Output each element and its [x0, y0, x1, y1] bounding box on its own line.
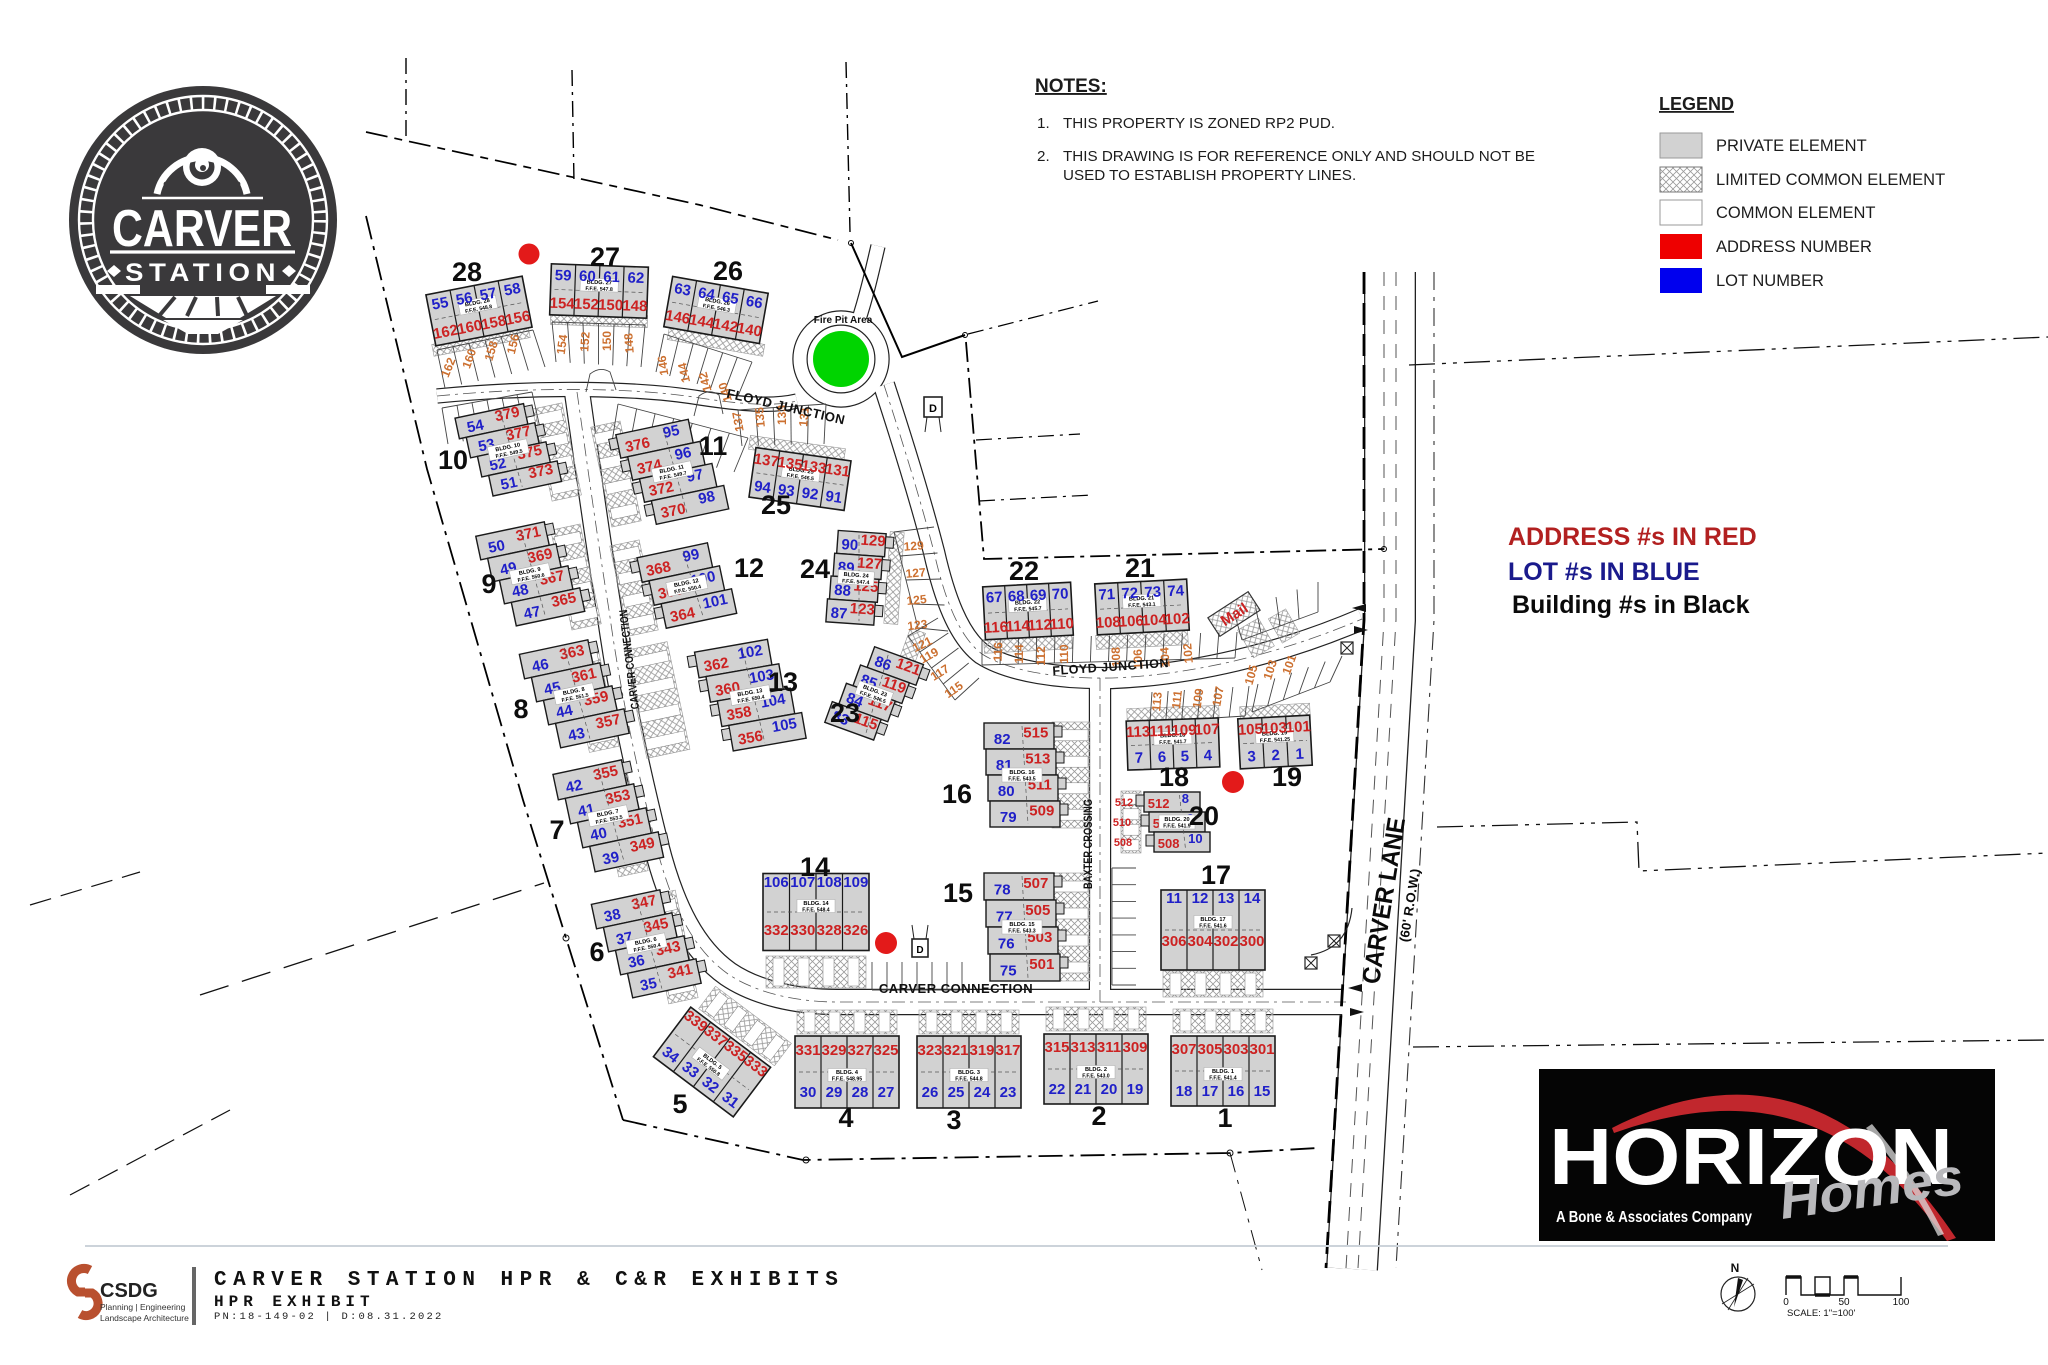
svg-text:THIS DRAWING IS FOR REFERENCE: THIS DRAWING IS FOR REFERENCE ONLY AND S…: [1063, 148, 1535, 165]
svg-text:510: 510: [1113, 817, 1131, 829]
svg-text:4: 4: [838, 1103, 853, 1133]
svg-text:25: 25: [761, 490, 791, 520]
svg-text:67: 67: [985, 589, 1003, 607]
svg-text:56: 56: [454, 289, 474, 309]
svg-text:1: 1: [1295, 746, 1304, 763]
svg-text:68: 68: [1007, 588, 1025, 606]
svg-text:50: 50: [487, 537, 507, 557]
svg-text:129: 129: [860, 532, 886, 551]
svg-text:D: D: [929, 403, 937, 415]
svg-text:17: 17: [1201, 860, 1231, 890]
svg-text:30: 30: [800, 1084, 817, 1101]
svg-text:135: 135: [752, 406, 768, 427]
svg-text:58: 58: [503, 280, 523, 300]
svg-text:4: 4: [1203, 747, 1213, 764]
svg-text:18: 18: [1159, 762, 1189, 792]
svg-text:LOT NUMBER: LOT NUMBER: [1716, 272, 1824, 290]
svg-text:148: 148: [622, 297, 648, 315]
svg-text:328: 328: [817, 922, 842, 939]
svg-text:17: 17: [1202, 1083, 1219, 1100]
svg-text:14: 14: [1244, 890, 1261, 907]
svg-text:42: 42: [564, 777, 584, 797]
svg-text:513: 513: [1025, 750, 1050, 767]
svg-text:BLDG. 1: BLDG. 1: [1212, 1069, 1234, 1075]
svg-text:317: 317: [995, 1042, 1020, 1059]
svg-text:109: 109: [1190, 687, 1207, 709]
svg-text:N: N: [1731, 1261, 1740, 1275]
svg-text:NOTES:: NOTES:: [1035, 76, 1107, 97]
svg-text:101: 101: [1285, 718, 1311, 736]
svg-text:152: 152: [574, 296, 600, 314]
svg-text:329: 329: [821, 1042, 846, 1059]
svg-text:USED TO ESTABLISH PROPERTY LIN: USED TO ESTABLISH PROPERTY LINES.: [1063, 167, 1356, 184]
svg-text:12: 12: [734, 553, 764, 583]
svg-text:321: 321: [943, 1042, 968, 1059]
svg-text:13: 13: [1218, 890, 1235, 907]
svg-text:2: 2: [1091, 1101, 1106, 1131]
svg-text:14: 14: [800, 852, 830, 882]
svg-text:311: 311: [1097, 1039, 1121, 1056]
svg-text:154: 154: [554, 333, 571, 355]
svg-text:1: 1: [1217, 1103, 1232, 1133]
svg-text:F.F.E. 543.5: F.F.E. 543.5: [1008, 777, 1036, 783]
svg-text:313: 313: [1070, 1039, 1095, 1056]
svg-text:105: 105: [1237, 721, 1263, 739]
svg-text:71: 71: [1098, 586, 1116, 604]
svg-text:46: 46: [530, 656, 550, 676]
svg-text:98: 98: [697, 488, 717, 508]
svg-text:106: 106: [764, 874, 789, 891]
svg-text:F.F.E. 541.4: F.F.E. 541.4: [1209, 1076, 1237, 1082]
svg-text:6: 6: [589, 937, 604, 967]
svg-text:150: 150: [600, 331, 614, 351]
svg-text:100: 100: [1893, 1297, 1910, 1308]
svg-text:50: 50: [1838, 1297, 1850, 1308]
svg-text:8: 8: [1182, 791, 1189, 806]
svg-text:Building #s in Black: Building #s in Black: [1512, 591, 1750, 619]
svg-text:7: 7: [1135, 750, 1144, 767]
svg-text:133: 133: [800, 457, 827, 477]
svg-text:8: 8: [513, 694, 528, 724]
svg-text:40: 40: [589, 824, 609, 844]
svg-text:24: 24: [800, 554, 830, 584]
svg-text:5: 5: [672, 1089, 687, 1119]
svg-text:19: 19: [1272, 762, 1302, 792]
svg-text:11: 11: [699, 431, 728, 461]
svg-text:21: 21: [1125, 553, 1155, 583]
svg-text:113: 113: [1149, 691, 1165, 712]
svg-text:28: 28: [852, 1084, 869, 1101]
svg-text:73: 73: [1144, 583, 1162, 601]
svg-text:21: 21: [1075, 1081, 1092, 1098]
svg-text:27: 27: [878, 1084, 895, 1101]
svg-text:10: 10: [1188, 831, 1202, 846]
svg-text:501: 501: [1029, 956, 1054, 973]
svg-text:19: 19: [1127, 1081, 1144, 1098]
svg-text:7: 7: [549, 815, 564, 845]
svg-text:F.F.E. 548.95: F.F.E. 548.95: [832, 1077, 862, 1083]
svg-text:114: 114: [1012, 644, 1026, 664]
svg-text:F.F.E. 543.3: F.F.E. 543.3: [1008, 929, 1036, 935]
svg-text:99: 99: [681, 546, 701, 566]
svg-text:13: 13: [768, 667, 798, 697]
svg-text:75: 75: [1000, 963, 1017, 980]
svg-text:508: 508: [1158, 836, 1180, 851]
svg-text:39: 39: [601, 848, 621, 868]
svg-text:107: 107: [1194, 721, 1220, 739]
svg-text:16: 16: [1228, 1083, 1245, 1100]
svg-text:137: 137: [753, 450, 780, 470]
svg-text:332: 332: [764, 922, 789, 939]
svg-text:309: 309: [1122, 1039, 1147, 1056]
svg-text:1.: 1.: [1037, 115, 1050, 132]
svg-text:2.: 2.: [1037, 148, 1050, 165]
svg-text:65: 65: [721, 288, 740, 308]
svg-text:F.F.E. 548.4: F.F.E. 548.4: [802, 908, 830, 914]
svg-text:15: 15: [943, 878, 973, 908]
svg-text:SCALE: 1"=100': SCALE: 1"=100': [1787, 1308, 1855, 1319]
svg-text:BLDG. 14: BLDG. 14: [803, 901, 829, 907]
svg-text:BLDG. 4: BLDG. 4: [836, 1070, 859, 1076]
svg-text:BLDG. 3: BLDG. 3: [958, 1070, 980, 1076]
svg-text:302: 302: [1213, 933, 1238, 950]
svg-text:55: 55: [430, 294, 450, 314]
svg-text:29: 29: [826, 1084, 843, 1101]
svg-text:78: 78: [994, 882, 1011, 899]
svg-text:66: 66: [745, 293, 764, 313]
svg-text:F.F.E. 543.0: F.F.E. 543.0: [1082, 1074, 1110, 1080]
svg-text:102: 102: [1180, 642, 1196, 663]
svg-text:27: 27: [590, 242, 620, 272]
svg-text:508: 508: [1114, 837, 1132, 849]
svg-text:Planning | Engineering: Planning | Engineering: [100, 1302, 186, 1312]
svg-text:304: 304: [1187, 933, 1213, 950]
svg-text:505: 505: [1025, 902, 1050, 919]
svg-text:22: 22: [1049, 1081, 1066, 1098]
svg-text:103: 103: [1261, 719, 1287, 737]
svg-text:38: 38: [602, 906, 622, 926]
svg-text:0: 0: [1783, 1297, 1789, 1308]
svg-text:102: 102: [1164, 610, 1190, 628]
svg-text:BAXTER CROSSING: BAXTER CROSSING: [1083, 799, 1095, 889]
svg-text:24: 24: [974, 1084, 991, 1101]
svg-text:512: 512: [1115, 797, 1133, 809]
svg-text:63: 63: [673, 280, 692, 300]
svg-text:ADDRESS NUMBER: ADDRESS NUMBER: [1716, 238, 1872, 256]
svg-text:315: 315: [1044, 1039, 1069, 1056]
svg-text:51: 51: [499, 474, 519, 494]
svg-text:305: 305: [1197, 1041, 1222, 1058]
svg-text:111: 111: [1169, 689, 1185, 709]
svg-text:D: D: [916, 945, 923, 956]
svg-text:301: 301: [1249, 1041, 1274, 1058]
svg-text:PN:18-149-02 | D:08.31.2022: PN:18-149-02 | D:08.31.2022: [214, 1311, 444, 1323]
svg-text:Landscape Architecture: Landscape Architecture: [100, 1313, 189, 1323]
svg-text:306: 306: [1161, 933, 1186, 950]
svg-text:70: 70: [1051, 585, 1069, 603]
svg-text:95: 95: [661, 422, 681, 442]
svg-text:91: 91: [824, 488, 843, 507]
svg-text:154: 154: [549, 295, 575, 313]
svg-text:43: 43: [567, 725, 587, 745]
svg-text:CARVER: CARVER: [112, 200, 292, 258]
svg-text:135: 135: [776, 454, 803, 474]
svg-text:74: 74: [1167, 582, 1185, 600]
svg-text:ADDRESS #s IN RED: ADDRESS #s IN RED: [1508, 523, 1757, 551]
svg-text:F.F.E. 547.8: F.F.E. 547.8: [585, 286, 613, 293]
svg-text:127: 127: [905, 565, 926, 581]
svg-text:123: 123: [849, 600, 875, 619]
svg-text:CSDG: CSDG: [100, 1280, 158, 1302]
svg-text:507: 507: [1023, 875, 1048, 892]
svg-text:152: 152: [577, 331, 592, 352]
svg-text:129: 129: [903, 538, 924, 553]
svg-text:F.F.E. 541.9: F.F.E. 541.9: [1163, 824, 1191, 830]
svg-text:300: 300: [1239, 933, 1264, 950]
svg-text:28: 28: [452, 257, 482, 287]
svg-text:90: 90: [841, 536, 859, 554]
svg-text:72: 72: [1121, 585, 1139, 603]
svg-text:512: 512: [1148, 796, 1170, 811]
svg-text:82: 82: [994, 731, 1011, 748]
svg-text:509: 509: [1029, 802, 1054, 819]
svg-text:113: 113: [1126, 723, 1151, 741]
svg-text:10: 10: [438, 445, 468, 475]
svg-text:F.F.E. 541.7: F.F.E. 541.7: [1159, 739, 1187, 746]
svg-text:47: 47: [522, 603, 542, 623]
svg-text:CARVER CONNECTION: CARVER CONNECTION: [879, 981, 1033, 996]
svg-text:323: 323: [917, 1042, 942, 1059]
svg-text:CARVER STATION HPR & C&R EXHIB: CARVER STATION HPR & C&R EXHIBITS: [214, 1269, 844, 1292]
svg-text:59: 59: [554, 267, 571, 285]
svg-text:12: 12: [1192, 890, 1209, 907]
svg-text:Fire Pit Area: Fire Pit Area: [814, 315, 873, 326]
svg-text:THIS PROPERTY IS ZONED RP2 PUD: THIS PROPERTY IS ZONED RP2 PUD.: [1063, 115, 1335, 132]
svg-text:131: 131: [824, 460, 851, 480]
svg-text:22: 22: [1009, 556, 1039, 586]
svg-text:125: 125: [906, 592, 928, 608]
svg-text:76: 76: [998, 936, 1015, 953]
svg-text:LEGEND: LEGEND: [1659, 94, 1734, 114]
svg-text:106: 106: [1118, 612, 1144, 630]
svg-text:11: 11: [1166, 890, 1182, 907]
svg-text:319: 319: [969, 1042, 994, 1059]
svg-text:87: 87: [830, 605, 848, 623]
svg-text:330: 330: [790, 922, 815, 939]
svg-text:26: 26: [713, 256, 743, 286]
svg-text:3: 3: [1247, 748, 1256, 765]
svg-text:3: 3: [946, 1105, 961, 1135]
svg-text:23: 23: [830, 698, 860, 728]
svg-text:F.F.E. 541.6: F.F.E. 541.6: [1199, 924, 1227, 930]
svg-text:20: 20: [1189, 801, 1219, 831]
svg-text:116: 116: [991, 642, 1006, 662]
svg-text:109: 109: [843, 874, 868, 891]
svg-text:LOT #s IN BLUE: LOT #s IN BLUE: [1508, 558, 1700, 586]
svg-text:20: 20: [1101, 1081, 1118, 1098]
svg-text:92: 92: [801, 484, 820, 503]
svg-text:109: 109: [1171, 722, 1197, 740]
svg-text:325: 325: [873, 1042, 898, 1059]
svg-text:62: 62: [627, 269, 644, 287]
svg-text:79: 79: [1000, 809, 1017, 826]
svg-text:COMMON ELEMENT: COMMON ELEMENT: [1716, 204, 1876, 222]
svg-text:326: 326: [843, 922, 868, 939]
svg-text:HPR EXHIBIT: HPR EXHIBIT: [214, 1293, 375, 1311]
svg-text:BLDG. 16: BLDG. 16: [1009, 770, 1034, 776]
svg-text:BLDG. 15: BLDG. 15: [1009, 922, 1034, 928]
svg-text:110: 110: [1057, 644, 1071, 664]
svg-text:A Bone & Associates Company: A Bone & Associates Company: [1556, 1209, 1752, 1226]
svg-text:112: 112: [1034, 646, 1048, 666]
svg-text:BLDG. 20: BLDG. 20: [1164, 817, 1189, 823]
svg-text:9: 9: [481, 569, 496, 599]
svg-text:146: 146: [655, 354, 672, 376]
svg-text:303: 303: [1223, 1041, 1248, 1058]
svg-text:150: 150: [598, 296, 624, 314]
svg-text:57: 57: [478, 285, 498, 305]
svg-text:BLDG. 2: BLDG. 2: [1085, 1067, 1107, 1073]
svg-text:331: 331: [795, 1042, 820, 1059]
svg-text:123: 123: [907, 617, 929, 633]
svg-text:STATION: STATION: [125, 259, 281, 287]
svg-text:F.F.E. 544.8: F.F.E. 544.8: [955, 1077, 983, 1083]
svg-text:BLDG. 17: BLDG. 17: [1200, 917, 1225, 923]
svg-text:18: 18: [1176, 1083, 1193, 1100]
svg-text:16: 16: [942, 779, 972, 809]
svg-text:LIMITED COMMON ELEMENT: LIMITED COMMON ELEMENT: [1716, 171, 1945, 189]
svg-text:127: 127: [856, 555, 882, 574]
svg-text:15: 15: [1254, 1083, 1271, 1100]
svg-text:110: 110: [1049, 615, 1074, 633]
svg-text:23: 23: [1000, 1084, 1017, 1101]
svg-text:108: 108: [1095, 614, 1121, 632]
svg-text:35: 35: [639, 975, 659, 995]
svg-text:80: 80: [998, 783, 1015, 800]
svg-text:515: 515: [1023, 724, 1048, 741]
svg-text:25: 25: [948, 1084, 965, 1101]
svg-text:148: 148: [621, 332, 636, 353]
svg-text:327: 327: [847, 1042, 872, 1059]
svg-text:69: 69: [1029, 587, 1047, 605]
svg-text:26: 26: [922, 1084, 939, 1101]
svg-text:111: 111: [1149, 723, 1173, 741]
svg-text:307: 307: [1171, 1041, 1196, 1058]
svg-text:PRIVATE ELEMENT: PRIVATE ELEMENT: [1716, 137, 1867, 155]
